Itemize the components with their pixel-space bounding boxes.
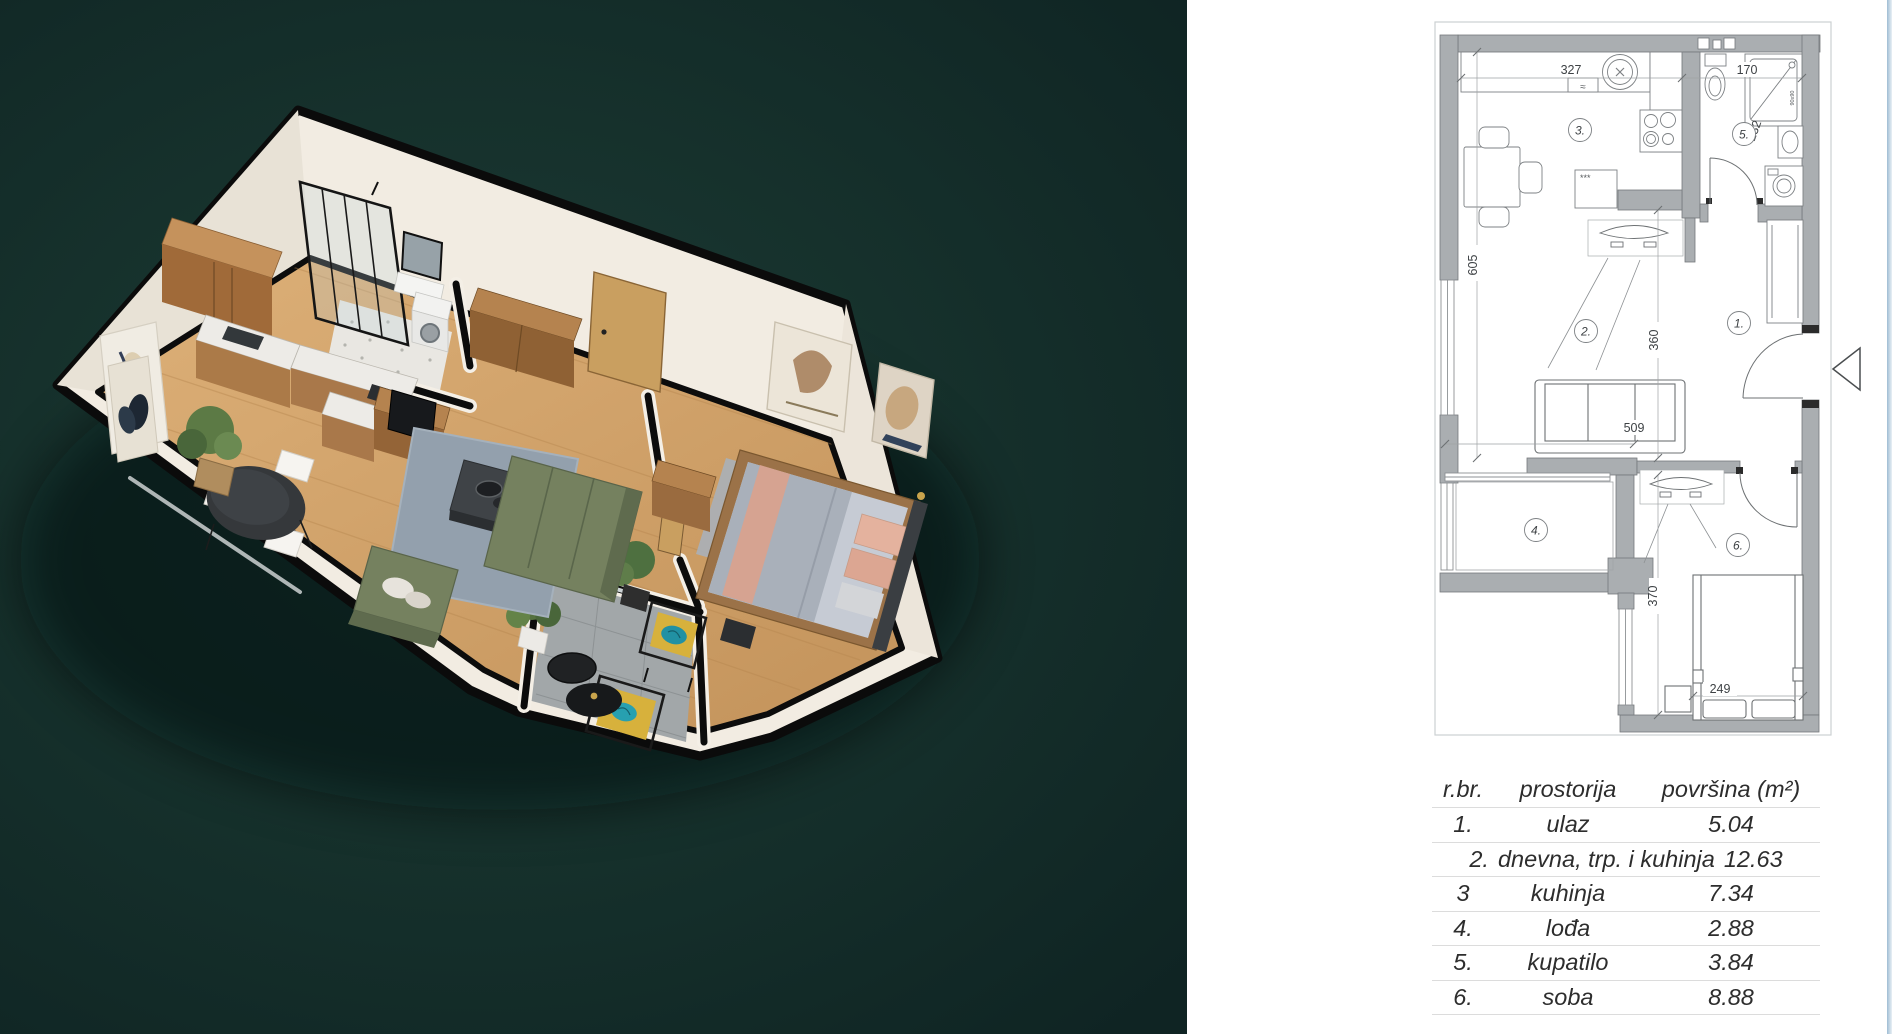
table-row: 4. lođa 2.88: [1432, 912, 1820, 947]
row-number: 3: [1432, 882, 1494, 906]
ac-unit: [1640, 470, 1724, 563]
row-room: kupatilo: [1494, 951, 1642, 975]
row-area: 5.04: [1642, 813, 1820, 837]
entry-door: [588, 272, 666, 392]
render-panel: [0, 0, 1187, 1034]
page: 327 170 605 232 360 509 370 249 90x90 ≈ …: [0, 0, 1892, 1034]
row-area: 12.63: [1724, 848, 1783, 872]
row-number: 5.: [1432, 951, 1494, 975]
room-2: 2.: [1580, 325, 1591, 339]
room-6: 6.: [1733, 539, 1743, 553]
room-5: 5.: [1739, 128, 1749, 142]
row-number: 4.: [1432, 917, 1494, 941]
row-room: ulaz: [1494, 813, 1642, 837]
room-3: 3.: [1575, 124, 1585, 138]
dim-bath-width: 170: [1737, 63, 1758, 77]
area-table-header: r.br. prostorija površina (m²): [1432, 772, 1820, 808]
row-room: lođa: [1494, 917, 1642, 941]
washing-machine: [412, 292, 452, 352]
plan-bed: [1665, 575, 1803, 720]
plan-windows: [1441, 280, 1632, 705]
plan-sofa: [1535, 380, 1685, 453]
table-row: 1. ulaz 5.04: [1432, 808, 1820, 843]
row-number: 1.: [1432, 813, 1494, 837]
plan-panel: 327 170 605 232 360 509 370 249 90x90 ≈ …: [1187, 0, 1892, 1034]
row-room: soba: [1494, 986, 1642, 1010]
row-area: 3.84: [1642, 951, 1820, 975]
table-row: 2. dnevna, trp. i kuhinja 12.63: [1432, 843, 1820, 878]
sink-mark: ≈: [1580, 82, 1586, 93]
dim-left-height: 605: [1466, 255, 1480, 276]
header-rbr: r.br.: [1432, 778, 1494, 802]
hall-wardrobe: [1767, 220, 1803, 323]
row-area: 7.34: [1642, 882, 1820, 906]
apartment-3d-render: [0, 0, 1187, 1034]
row-number: 6.: [1432, 986, 1494, 1010]
dim-bedroom-height: 370: [1646, 586, 1660, 607]
header-prostorija: prostorija: [1494, 778, 1642, 802]
room-1: 1.: [1734, 317, 1744, 331]
dim-shower-size: 90x90: [1790, 91, 1796, 106]
dim-bed-width: 249: [1710, 682, 1731, 696]
table-row: 6. soba 8.88: [1432, 981, 1820, 1016]
art-frame: [872, 363, 934, 458]
row-area: 8.88: [1642, 986, 1820, 1010]
row-room: kuhinja: [1494, 882, 1642, 906]
fridge-mark: ***: [1580, 173, 1591, 183]
plan-dining: [1464, 127, 1542, 227]
table-row: 5. kupatilo 3.84: [1432, 946, 1820, 981]
dim-living-width: 509: [1624, 421, 1645, 435]
table-row: 3 kuhinja 7.34: [1432, 877, 1820, 912]
row-number: 2.: [1469, 848, 1489, 872]
page-right-border: [1887, 0, 1892, 1034]
leaning-art: [100, 322, 168, 462]
floorplan-drawing: 327 170 605 232 360 509 370 249 90x90 ≈ …: [1428, 18, 1868, 742]
dim-living-height: 360: [1647, 330, 1661, 351]
row-area: 2.88: [1642, 917, 1820, 941]
area-table: r.br. prostorija površina (m²) 1. ulaz 5…: [1432, 772, 1820, 1015]
row-room: dnevna, trp. i kuhinja: [1498, 848, 1715, 872]
dim-kitchen-width: 327: [1561, 63, 1582, 77]
vent-symbols: [1698, 38, 1735, 49]
room-4: 4.: [1531, 524, 1541, 538]
entrance-arrow-icon: [1833, 348, 1860, 390]
header-povrsina: površina (m²): [1642, 778, 1820, 802]
